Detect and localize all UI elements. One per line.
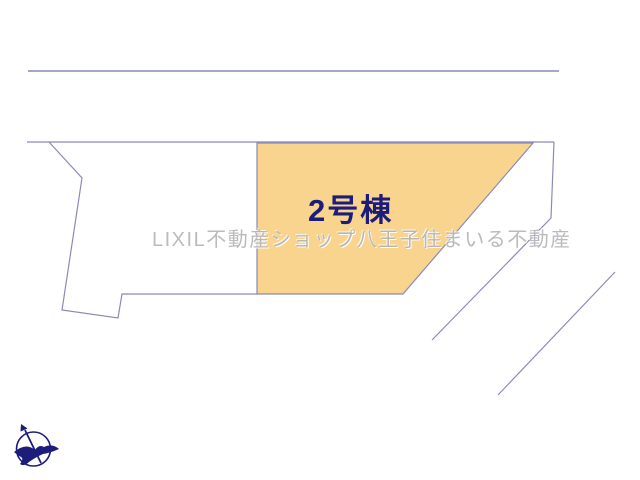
road-diagonal-line <box>498 272 615 395</box>
lot-2-label: 2号棟 <box>308 194 393 228</box>
plot-map: LIXIL不動産ショップ八王子住まいる不動産 2号棟 <box>0 0 640 480</box>
compass-icon <box>14 424 59 466</box>
compass-arrowhead-icon <box>21 424 28 432</box>
lot-2-polygon <box>257 143 533 294</box>
compass-bird-icon <box>14 445 59 465</box>
watermark-text: LIXIL不動産ショップ八王子住まいる不動産 <box>152 228 572 252</box>
